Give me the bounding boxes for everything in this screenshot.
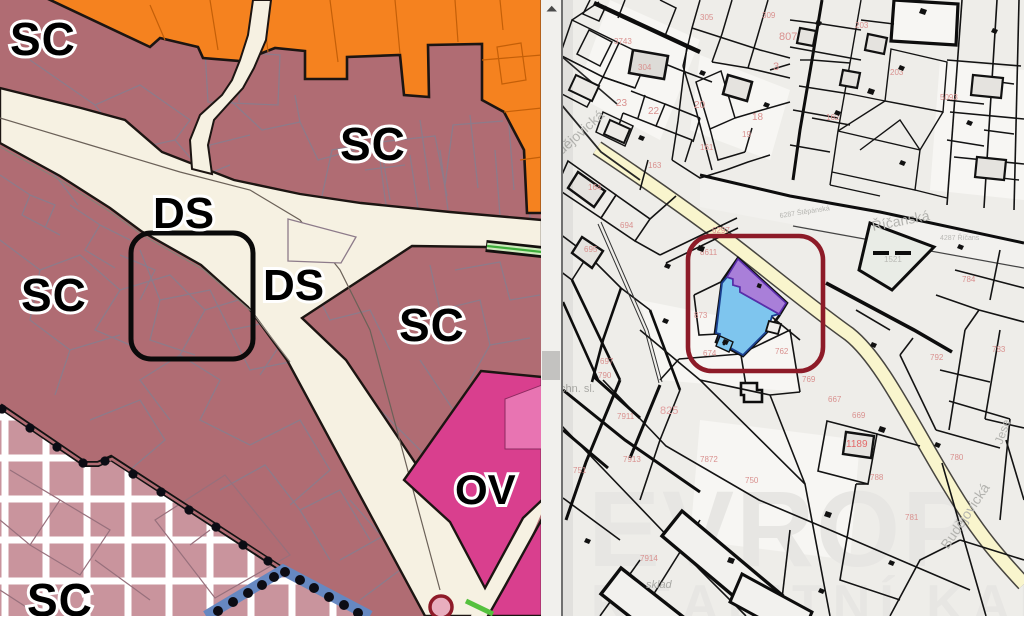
svg-text:203: 203 [855,21,869,30]
svg-text:781: 781 [905,513,919,522]
svg-text:SC: SC [21,269,87,321]
svg-text:304: 304 [638,63,652,72]
svg-text:788: 788 [870,473,884,482]
svg-text:309: 309 [762,11,776,20]
svg-text:EVROP: EVROP [588,468,976,589]
svg-text:674: 674 [703,349,717,358]
svg-text:4287 Říčans: 4287 Říčans [940,233,980,242]
svg-text:SC: SC [10,13,76,65]
svg-text:873: 873 [694,311,708,320]
svg-text:5093: 5093 [940,93,958,102]
svg-text:750: 750 [745,476,759,485]
svg-text:669: 669 [852,411,866,420]
svg-text:164: 164 [588,183,602,192]
svg-text:DS: DS [263,261,324,310]
svg-text:OV: OV [455,466,516,513]
svg-text:7913: 7913 [623,455,641,464]
svg-text:769: 769 [802,375,816,384]
svg-text:DS: DS [153,189,214,238]
svg-text:667: 667 [828,395,842,404]
svg-text:sklad: sklad [646,579,673,591]
svg-text:7872: 7872 [700,455,718,464]
svg-text:305: 305 [700,13,714,22]
svg-text:694: 694 [620,221,634,230]
svg-text:18: 18 [752,112,764,123]
svg-text:751: 751 [573,466,587,475]
svg-text:SC: SC [399,299,465,351]
svg-text:695: 695 [584,245,598,254]
svg-text:23: 23 [616,98,628,109]
svg-text:780: 780 [950,453,964,462]
svg-text:6297: 6297 [712,226,730,235]
svg-text:SC: SC [27,574,93,616]
svg-text:3: 3 [773,61,779,73]
svg-text:783: 783 [992,345,1006,354]
svg-text:790: 790 [598,371,612,380]
svg-text:807: 807 [779,31,797,43]
svg-text:20: 20 [694,100,706,111]
svg-text:784: 784 [962,275,976,284]
svg-text:7911: 7911 [617,412,635,421]
svg-text:1521: 1521 [884,255,902,264]
svg-text:3743: 3743 [614,37,632,46]
svg-text:792: 792 [930,353,944,362]
svg-text:7914: 7914 [640,554,658,563]
svg-text:825: 825 [660,405,678,417]
svg-text:697: 697 [600,357,614,366]
svg-text:19: 19 [742,130,751,139]
svg-text:1189: 1189 [846,439,868,450]
svg-text:22: 22 [648,106,660,117]
svg-text:163: 163 [648,161,662,170]
svg-text:SC: SC [340,118,406,170]
svg-text:762: 762 [775,347,789,356]
svg-text:161: 161 [700,143,714,152]
